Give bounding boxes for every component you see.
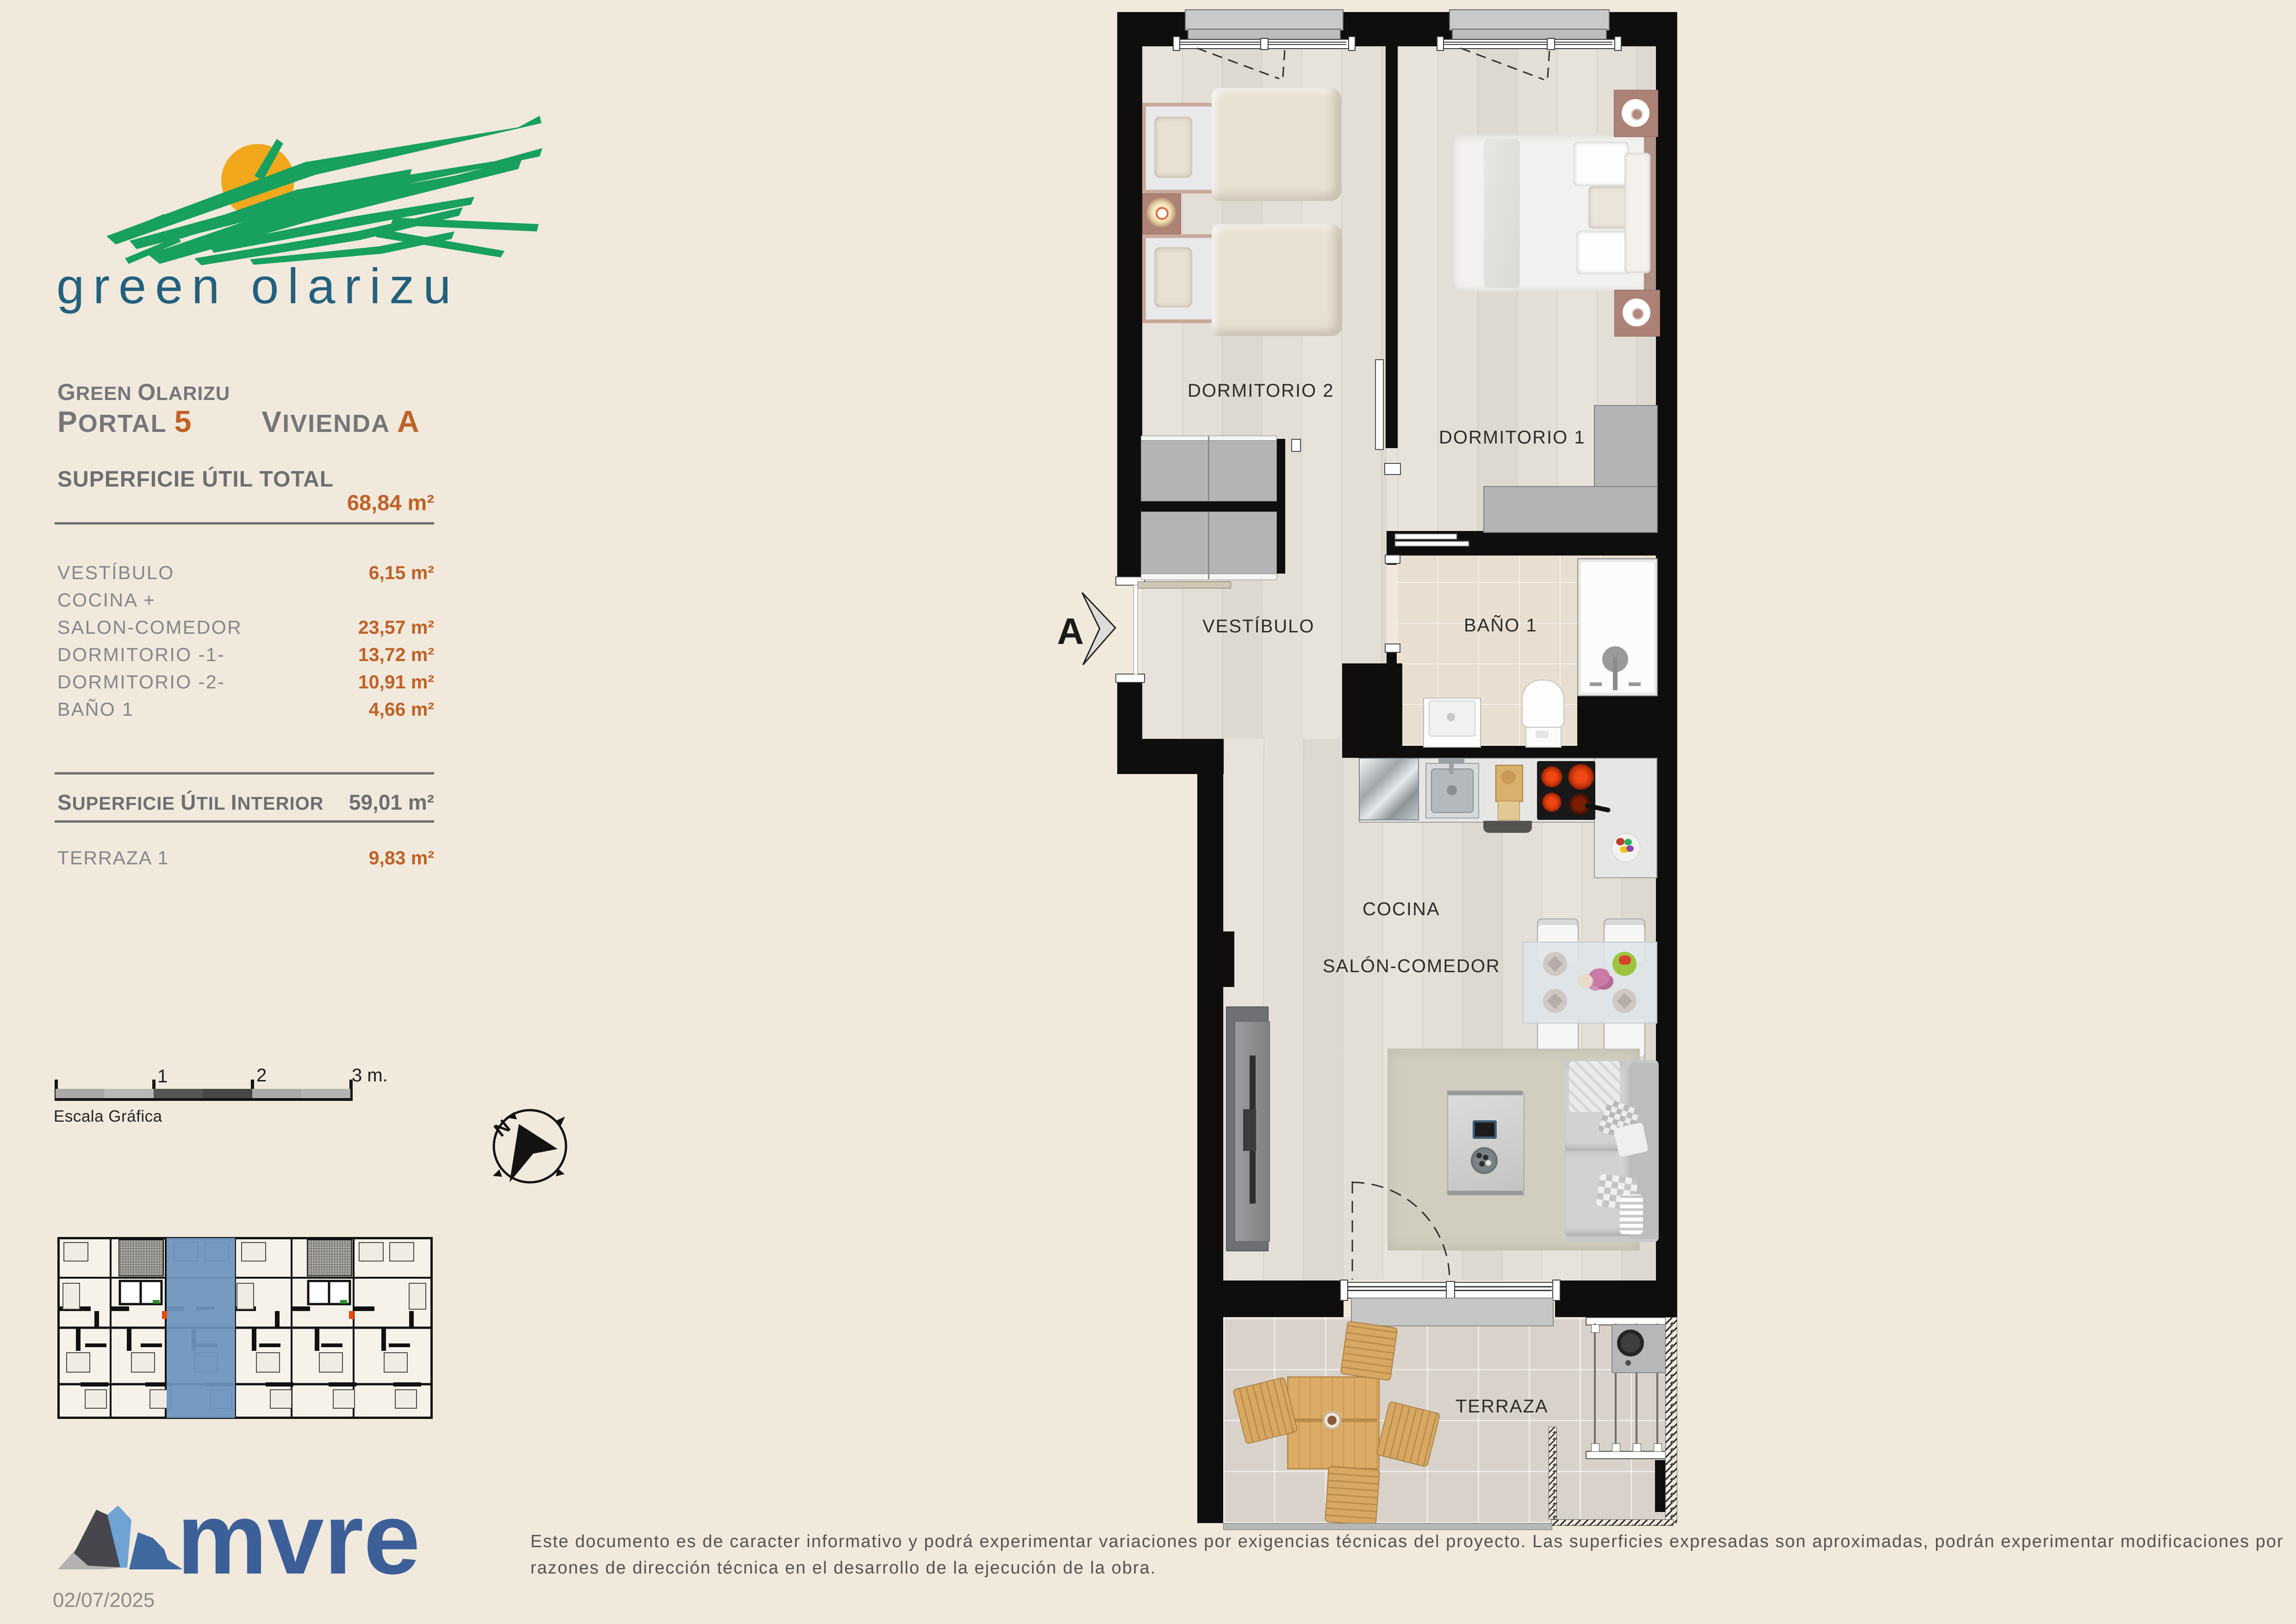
svg-text:N: N: [490, 1115, 514, 1141]
svg-text:2: 2: [256, 1065, 267, 1086]
svg-text:3 m.: 3 m.: [352, 1065, 388, 1086]
svg-text:1: 1: [157, 1066, 168, 1087]
